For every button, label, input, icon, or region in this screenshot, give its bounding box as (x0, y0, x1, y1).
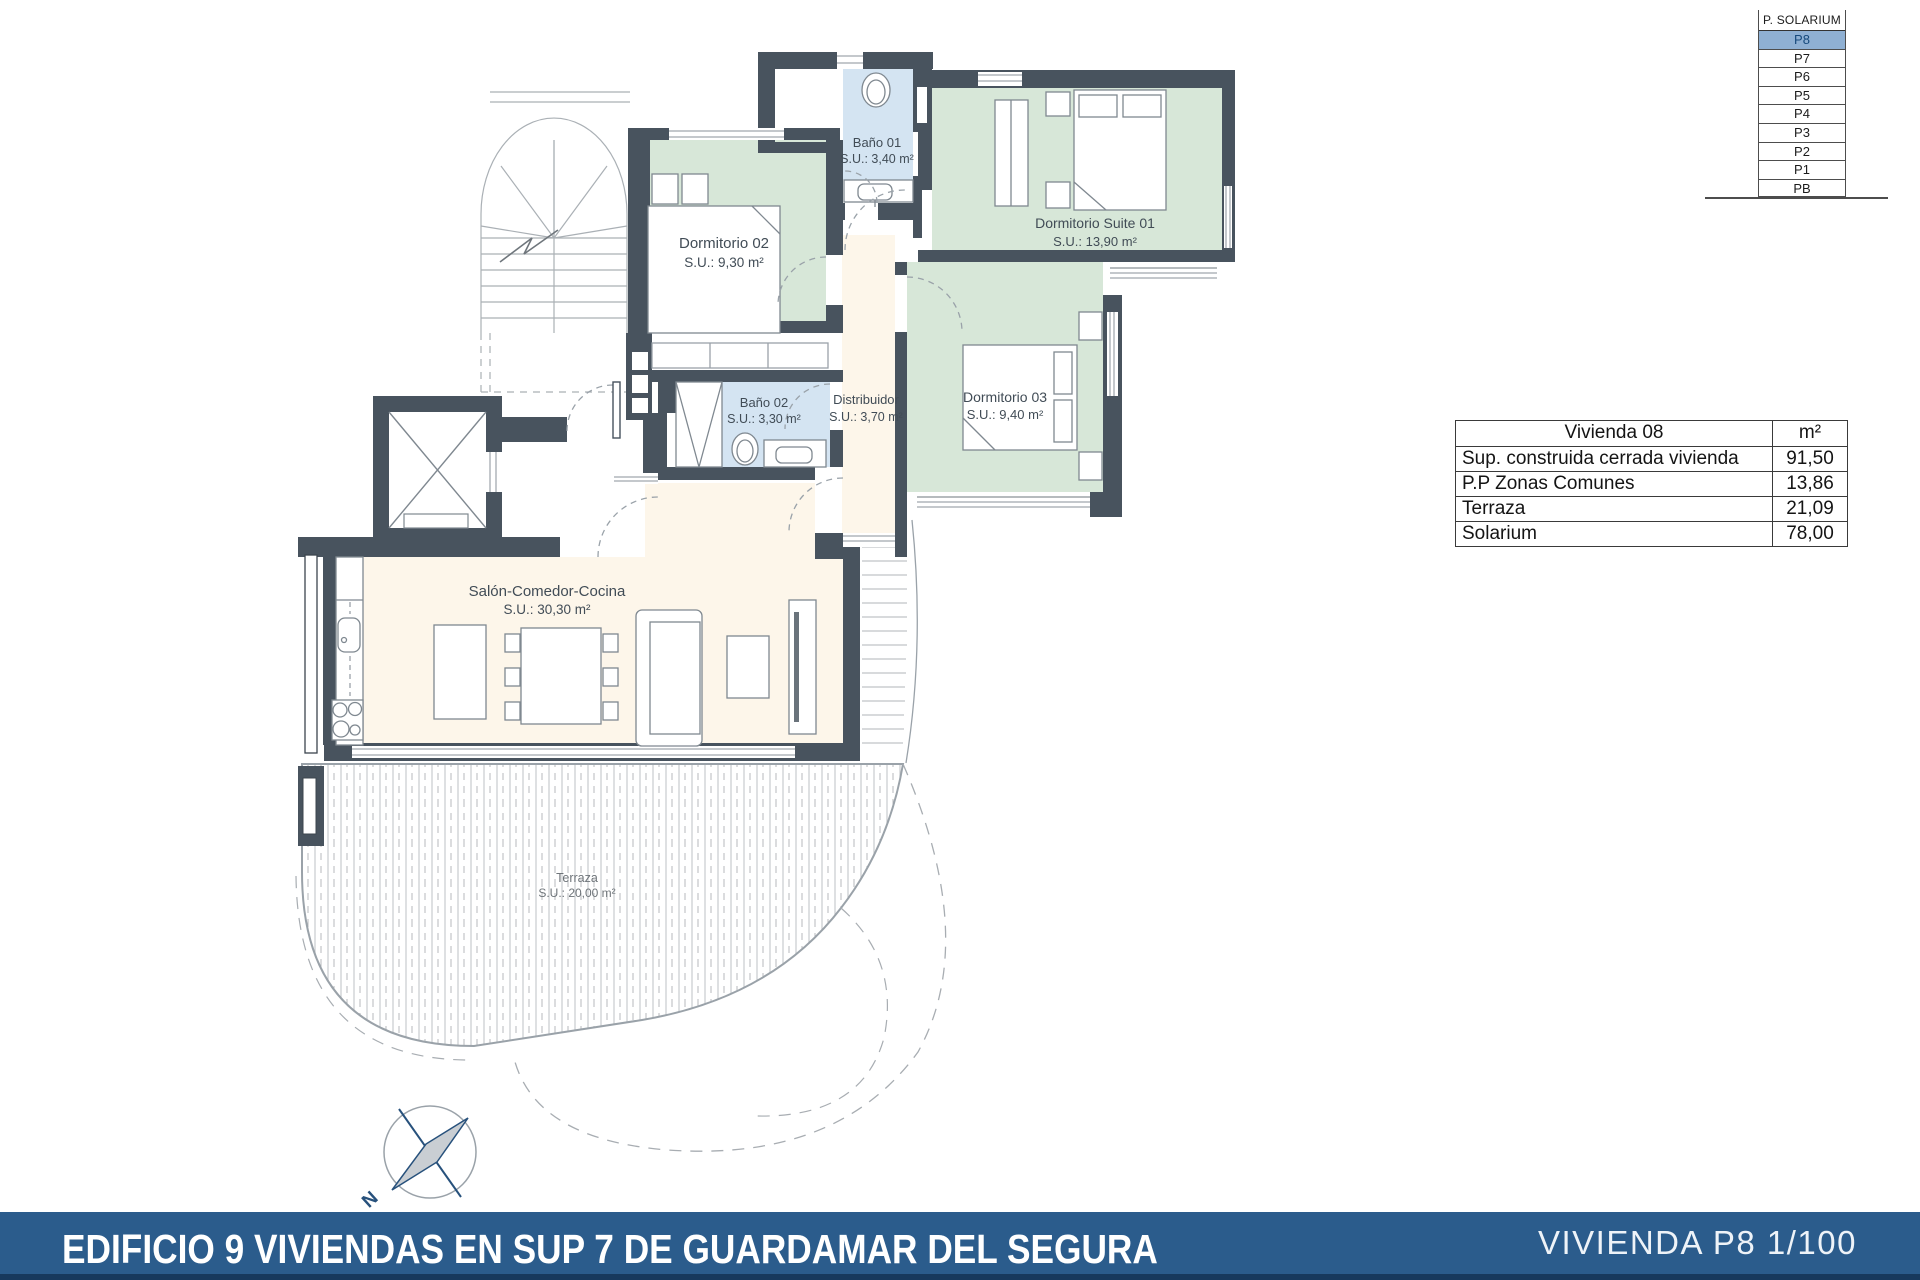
table-row: P.P Zonas Comunes 13,86 (1456, 471, 1847, 496)
floor-level-p8-selected: P8 (1759, 30, 1845, 49)
floor-level-p6: P6 (1759, 67, 1845, 86)
table-unit-header: m² (1773, 421, 1847, 446)
label-dormitorio-02-area: S.U.: 9,30 m² (684, 255, 764, 270)
nightstand (1046, 92, 1070, 116)
row-label: Sup. construida cerrada vivienda (1456, 447, 1773, 471)
label-suite-01: Dormitorio Suite 01 (1035, 215, 1155, 231)
floor-level-p5: P5 (1759, 86, 1845, 105)
elevator (389, 412, 502, 528)
floor-level-selector: P. SOLARIUM P8 P7 P6 P5 P4 P3 P2 P1 PB (1758, 10, 1846, 197)
row-label: P.P Zonas Comunes (1456, 472, 1773, 496)
nightstand (1079, 452, 1102, 480)
floor-level-pb: PB (1759, 179, 1845, 198)
label-salon: Salón-Comedor-Cocina (469, 583, 626, 600)
dining-table (521, 628, 601, 724)
row-value: 13,86 (1773, 472, 1847, 496)
compass-needle (392, 1118, 468, 1190)
exterior-steps (862, 520, 917, 763)
label-bano-01-area: S.U.: 3,40 m² (840, 152, 914, 166)
stair-dashed-continuation (481, 333, 627, 417)
label-bano-02: Baño 02 (740, 395, 788, 410)
table-header-row: Vivienda 08 m² (1456, 421, 1847, 446)
label-bano-02-area: S.U.: 3,30 m² (727, 412, 801, 426)
project-title: EDIFICIO 9 VIVIENDAS EN SUP 7 DE GUARDAM… (62, 1226, 1158, 1273)
row-label: Solarium (1456, 522, 1773, 546)
chair (505, 668, 520, 686)
coffee-table (727, 636, 769, 698)
nightstand (1046, 182, 1070, 208)
kitchen-island (434, 625, 486, 719)
dining-set (505, 628, 618, 724)
stair-break-line (500, 230, 558, 262)
label-distribuidor-area: S.U.: 3,70 m² (829, 410, 903, 424)
label-terraza: Terraza (556, 871, 598, 885)
label-dormitorio-03-area: S.U.: 9,40 m² (967, 407, 1044, 422)
label-suite-01-area: S.U.: 13,90 m² (1053, 234, 1137, 249)
label-bano-01: Baño 01 (853, 135, 901, 150)
nightstand (1079, 312, 1102, 340)
floor-level-p2: P2 (1759, 142, 1845, 161)
ground-line (1705, 197, 1888, 199)
area-summary-table: Vivienda 08 m² Sup. construida cerrada v… (1455, 420, 1848, 547)
label-terraza-area: S.U.: 20,00 m² (538, 886, 615, 900)
label-dormitorio-03: Dormitorio 03 (963, 389, 1047, 405)
floor-plan-drawing: Baño 01 S.U.: 3,40 m² Dormitorio 02 S.U.… (0, 0, 1920, 1280)
tv (794, 612, 799, 722)
label-salon-area: S.U.: 30,30 m² (503, 602, 591, 617)
table-row: Sup. construida cerrada vivienda 91,50 (1456, 446, 1847, 471)
floor-level-p1: P1 (1759, 160, 1845, 179)
row-value: 91,50 (1773, 447, 1847, 471)
label-dormitorio-02: Dormitorio 02 (679, 235, 769, 252)
kitchen-sink (338, 618, 360, 652)
compass: N (358, 1106, 476, 1212)
floor-level-p3: P3 (1759, 123, 1845, 142)
bed-suite-01 (995, 90, 1166, 210)
floor-level-p7: P7 (1759, 49, 1845, 68)
floorplan-sheet: { "floor_selector": { "levels": ["P. SOL… (0, 0, 1920, 1280)
chair (505, 634, 520, 652)
staircase (481, 92, 630, 417)
elevator-door (486, 452, 502, 492)
tv-unit (789, 600, 816, 734)
terrace (296, 764, 946, 1151)
chair (603, 634, 618, 652)
door-leaf-landing (613, 382, 620, 438)
chair (603, 702, 618, 720)
wardrobe-dormitorio-02 (652, 343, 828, 368)
table-title: Vivienda 08 (1456, 421, 1773, 446)
chair (505, 702, 520, 720)
sink (776, 447, 812, 463)
compass-north-label: N (358, 1188, 382, 1213)
distribuidor-floor (842, 235, 895, 533)
shower (676, 382, 722, 467)
table-row: Terraza 21,09 (1456, 496, 1847, 521)
label-distribuidor: Distribuidor (833, 392, 899, 407)
floor-level-p-solarium: P. SOLARIUM (1759, 10, 1845, 30)
table-row: Solarium 78,00 (1456, 521, 1847, 546)
sheet-label: VIVIENDA P8 1/100 (1538, 1224, 1857, 1262)
banner-dark-strip (0, 1274, 1920, 1280)
row-label: Terraza (1456, 497, 1773, 521)
row-value: 78,00 (1773, 522, 1847, 546)
floor-level-p4: P4 (1759, 104, 1845, 123)
chair (603, 668, 618, 686)
terrace-floor-hatch (302, 764, 903, 1046)
row-value: 21,09 (1773, 497, 1847, 521)
